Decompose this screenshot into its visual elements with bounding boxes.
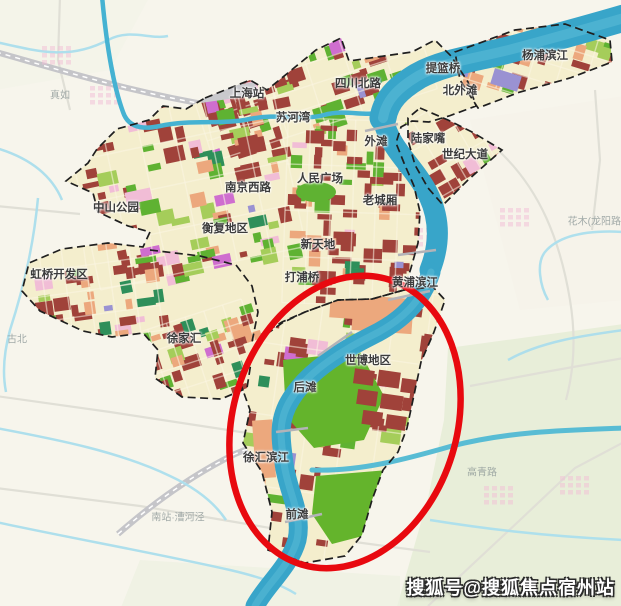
watermark: 搜狐号@搜狐焦点宿州站: [406, 574, 615, 600]
peoples-square-park: [296, 182, 336, 202]
planning-map-screenshot: 上海站四川北路提篮桥杨浦滨江北外滩苏河湾外滩陆家嘴世纪大道南京西路人民广场中山公…: [0, 0, 621, 606]
planning-map: [0, 0, 621, 606]
